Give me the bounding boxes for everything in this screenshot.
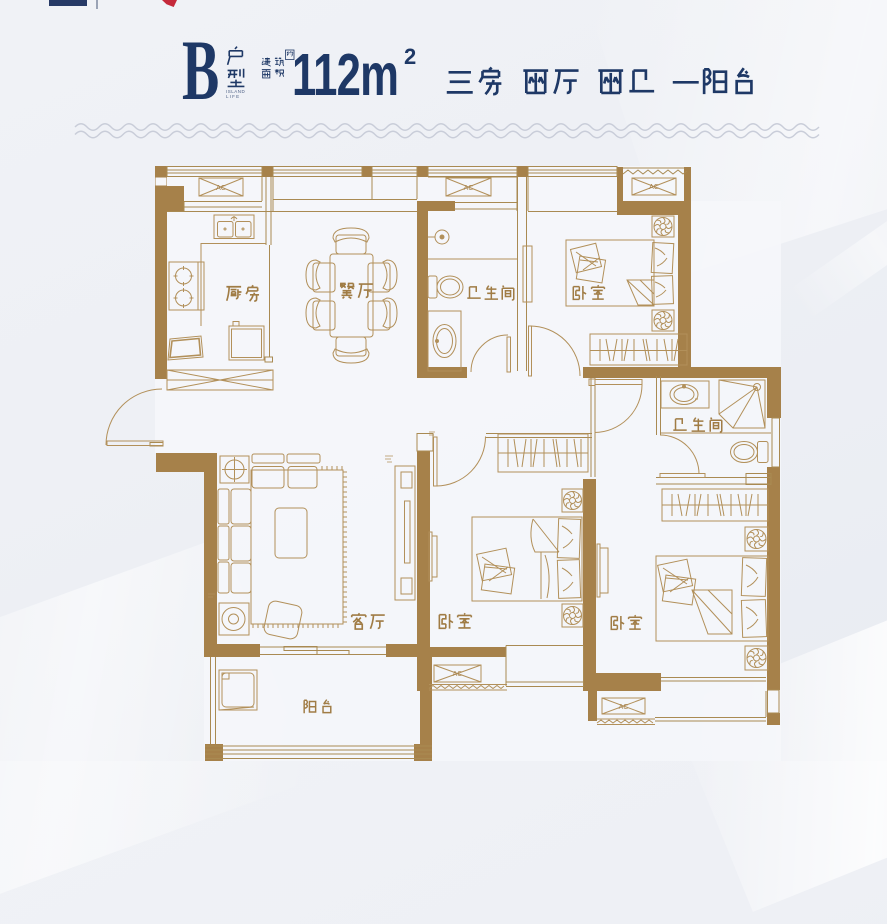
svg-text:AC: AC <box>619 704 629 711</box>
svg-text:AC: AC <box>464 185 474 192</box>
svg-text:AC: AC <box>216 185 226 192</box>
svg-text:B: B <box>182 22 219 118</box>
svg-text:2: 2 <box>404 44 416 69</box>
svg-text:AC: AC <box>649 184 659 191</box>
svg-text:112m: 112m <box>292 42 398 108</box>
svg-text:AC: AC <box>453 671 463 678</box>
svg-text:LIFE: LIFE <box>226 94 240 99</box>
